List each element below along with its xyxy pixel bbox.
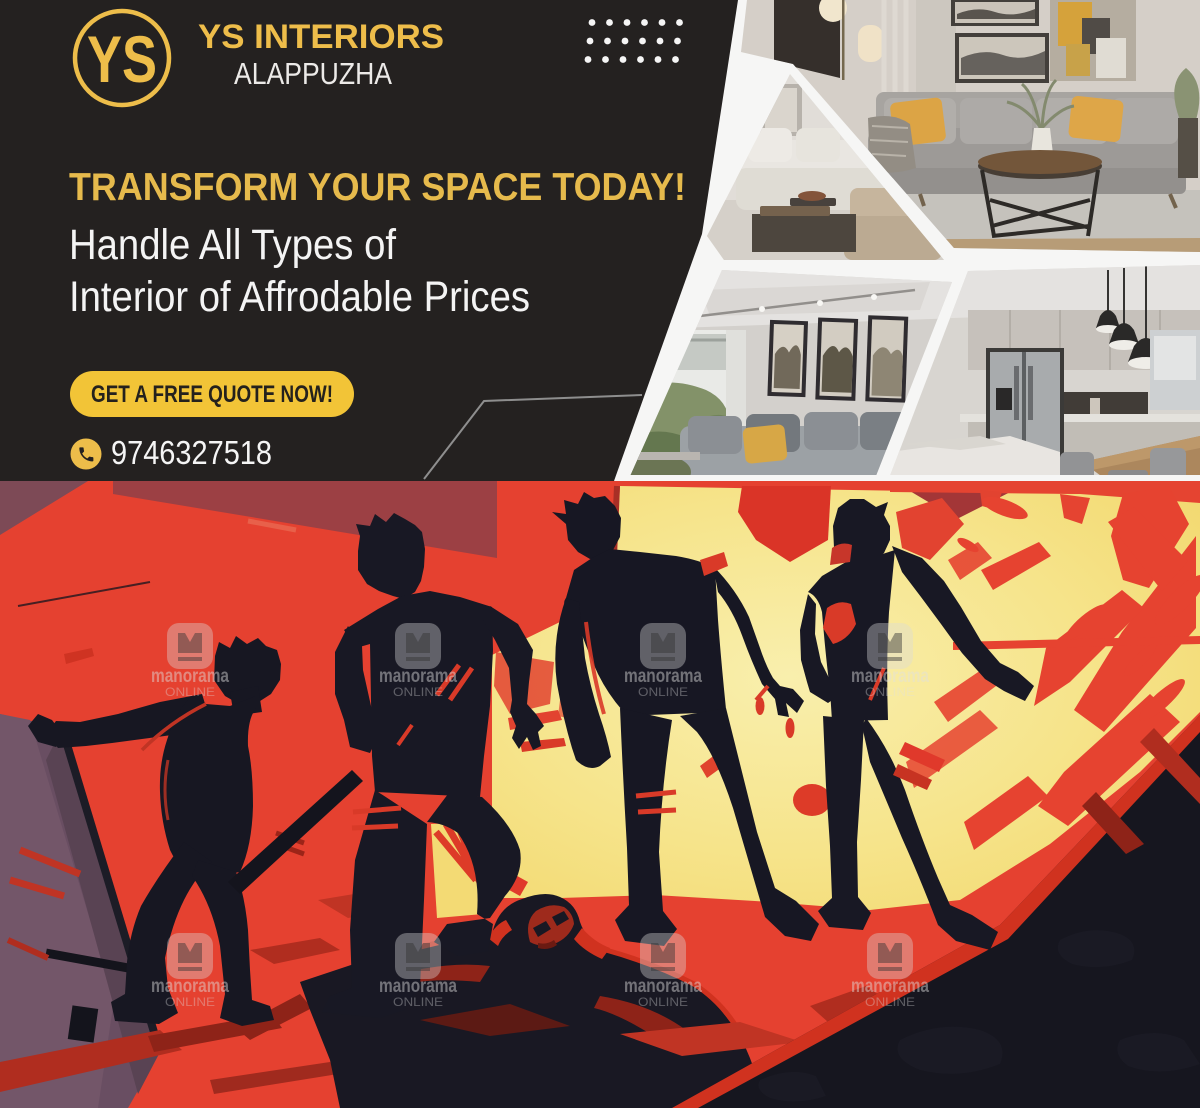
- svg-text:Handle All Types of: Handle All Types of: [69, 221, 397, 269]
- svg-text:ONLINE: ONLINE: [638, 997, 688, 1009]
- svg-text:9746327518: 9746327518: [111, 434, 272, 471]
- svg-text:ONLINE: ONLINE: [165, 997, 215, 1009]
- svg-text:manorama: manorama: [379, 666, 457, 687]
- svg-text:ONLINE: ONLINE: [638, 687, 688, 699]
- svg-text:manorama: manorama: [624, 976, 702, 997]
- svg-text:ONLINE: ONLINE: [865, 687, 915, 699]
- svg-text:manorama: manorama: [624, 666, 702, 687]
- svg-text:ONLINE: ONLINE: [393, 687, 443, 699]
- svg-text:YS: YS: [87, 22, 157, 96]
- svg-text:manorama: manorama: [851, 976, 929, 997]
- svg-text:ONLINE: ONLINE: [393, 997, 443, 1009]
- svg-text:manorama: manorama: [851, 666, 929, 687]
- svg-text:manorama: manorama: [151, 666, 229, 687]
- svg-text:ALAPPUZHA: ALAPPUZHA: [234, 56, 392, 91]
- svg-text:TRANSFORM YOUR SPACE TODAY!: TRANSFORM YOUR SPACE TODAY!: [69, 166, 686, 209]
- svg-text:ONLINE: ONLINE: [865, 997, 915, 1009]
- svg-text:manorama: manorama: [151, 976, 229, 997]
- svg-text:GET A FREE QUOTE NOW!: GET A FREE QUOTE NOW!: [91, 381, 333, 408]
- svg-text:manorama: manorama: [379, 976, 457, 997]
- svg-text:YS INTERIORS: YS INTERIORS: [198, 18, 444, 56]
- svg-text:Interior of Affrodable Prices: Interior of Affrodable Prices: [69, 273, 530, 321]
- svg-text:ONLINE: ONLINE: [165, 687, 215, 699]
